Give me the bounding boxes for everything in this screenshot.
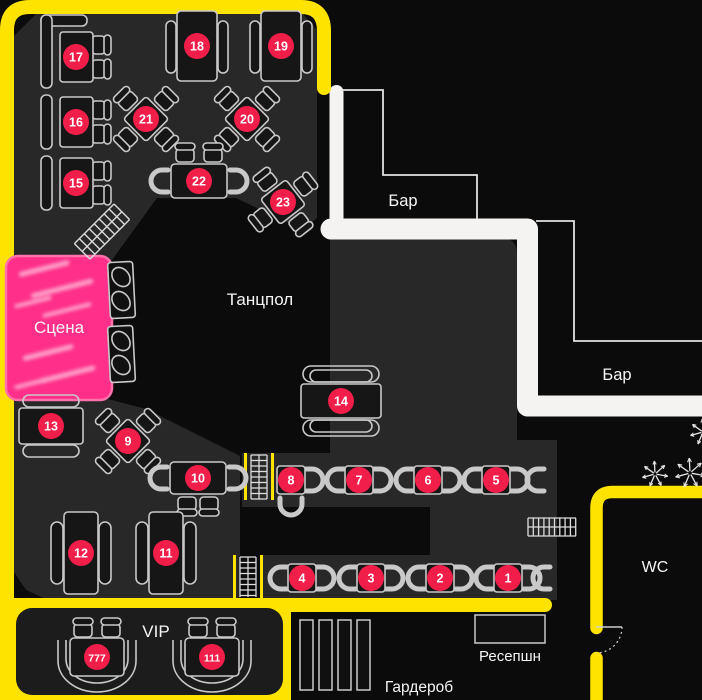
table-11[interactable]: 11 [136, 512, 196, 594]
table-number: 14 [334, 394, 348, 408]
table-number: 111 [204, 652, 221, 664]
cloakroom-label: Гардероб [385, 679, 453, 696]
reception-desk [475, 615, 545, 643]
table-number: 13 [44, 419, 58, 433]
snowflake-icon [642, 461, 667, 486]
bar-right-label: Бар [602, 366, 631, 384]
table-number: 777 [88, 652, 106, 664]
table-number: 21 [139, 112, 153, 126]
table-number: 16 [69, 115, 83, 129]
table-number: 10 [191, 471, 205, 485]
seating-area-center [330, 238, 517, 455]
table-number: 20 [240, 112, 254, 126]
snowflake-icon [676, 458, 702, 487]
table-number: 11 [159, 546, 172, 560]
table-number: 3 [368, 571, 375, 585]
floor-plan-svg: 1234567891011121314151617181920212223777… [0, 0, 702, 700]
table-number: 2 [437, 571, 444, 585]
reception-label: Ресепшн [479, 648, 541, 665]
table-12[interactable]: 12 [51, 512, 111, 594]
table-number: 6 [425, 473, 432, 487]
table-number: 15 [69, 176, 83, 190]
table-number: 1 [505, 571, 512, 585]
bar-top-label: Бар [388, 192, 417, 210]
bar-counter-right [536, 221, 702, 341]
stage-label: Сцена [34, 318, 85, 337]
vip-label: VIP [142, 622, 169, 641]
table-number: 7 [356, 473, 363, 487]
snowflake-icon [690, 419, 702, 444]
wall-wc [597, 492, 702, 700]
table-number: 19 [274, 39, 288, 53]
table-number: 12 [74, 546, 88, 560]
dancefloor-label: Танцпол [227, 290, 293, 309]
table-number: 4 [299, 571, 306, 585]
table-number: 18 [190, 39, 204, 53]
table-number: 8 [288, 473, 295, 487]
cloakroom-racks [300, 620, 370, 690]
table-number: 9 [125, 434, 132, 448]
table-number: 23 [276, 195, 290, 209]
wc-label: WC [642, 559, 669, 576]
table-number: 17 [69, 50, 83, 64]
table-number: 22 [192, 174, 206, 188]
club-floor-plan: 1234567891011121314151617181920212223777… [0, 0, 702, 700]
table-number: 5 [493, 473, 500, 487]
